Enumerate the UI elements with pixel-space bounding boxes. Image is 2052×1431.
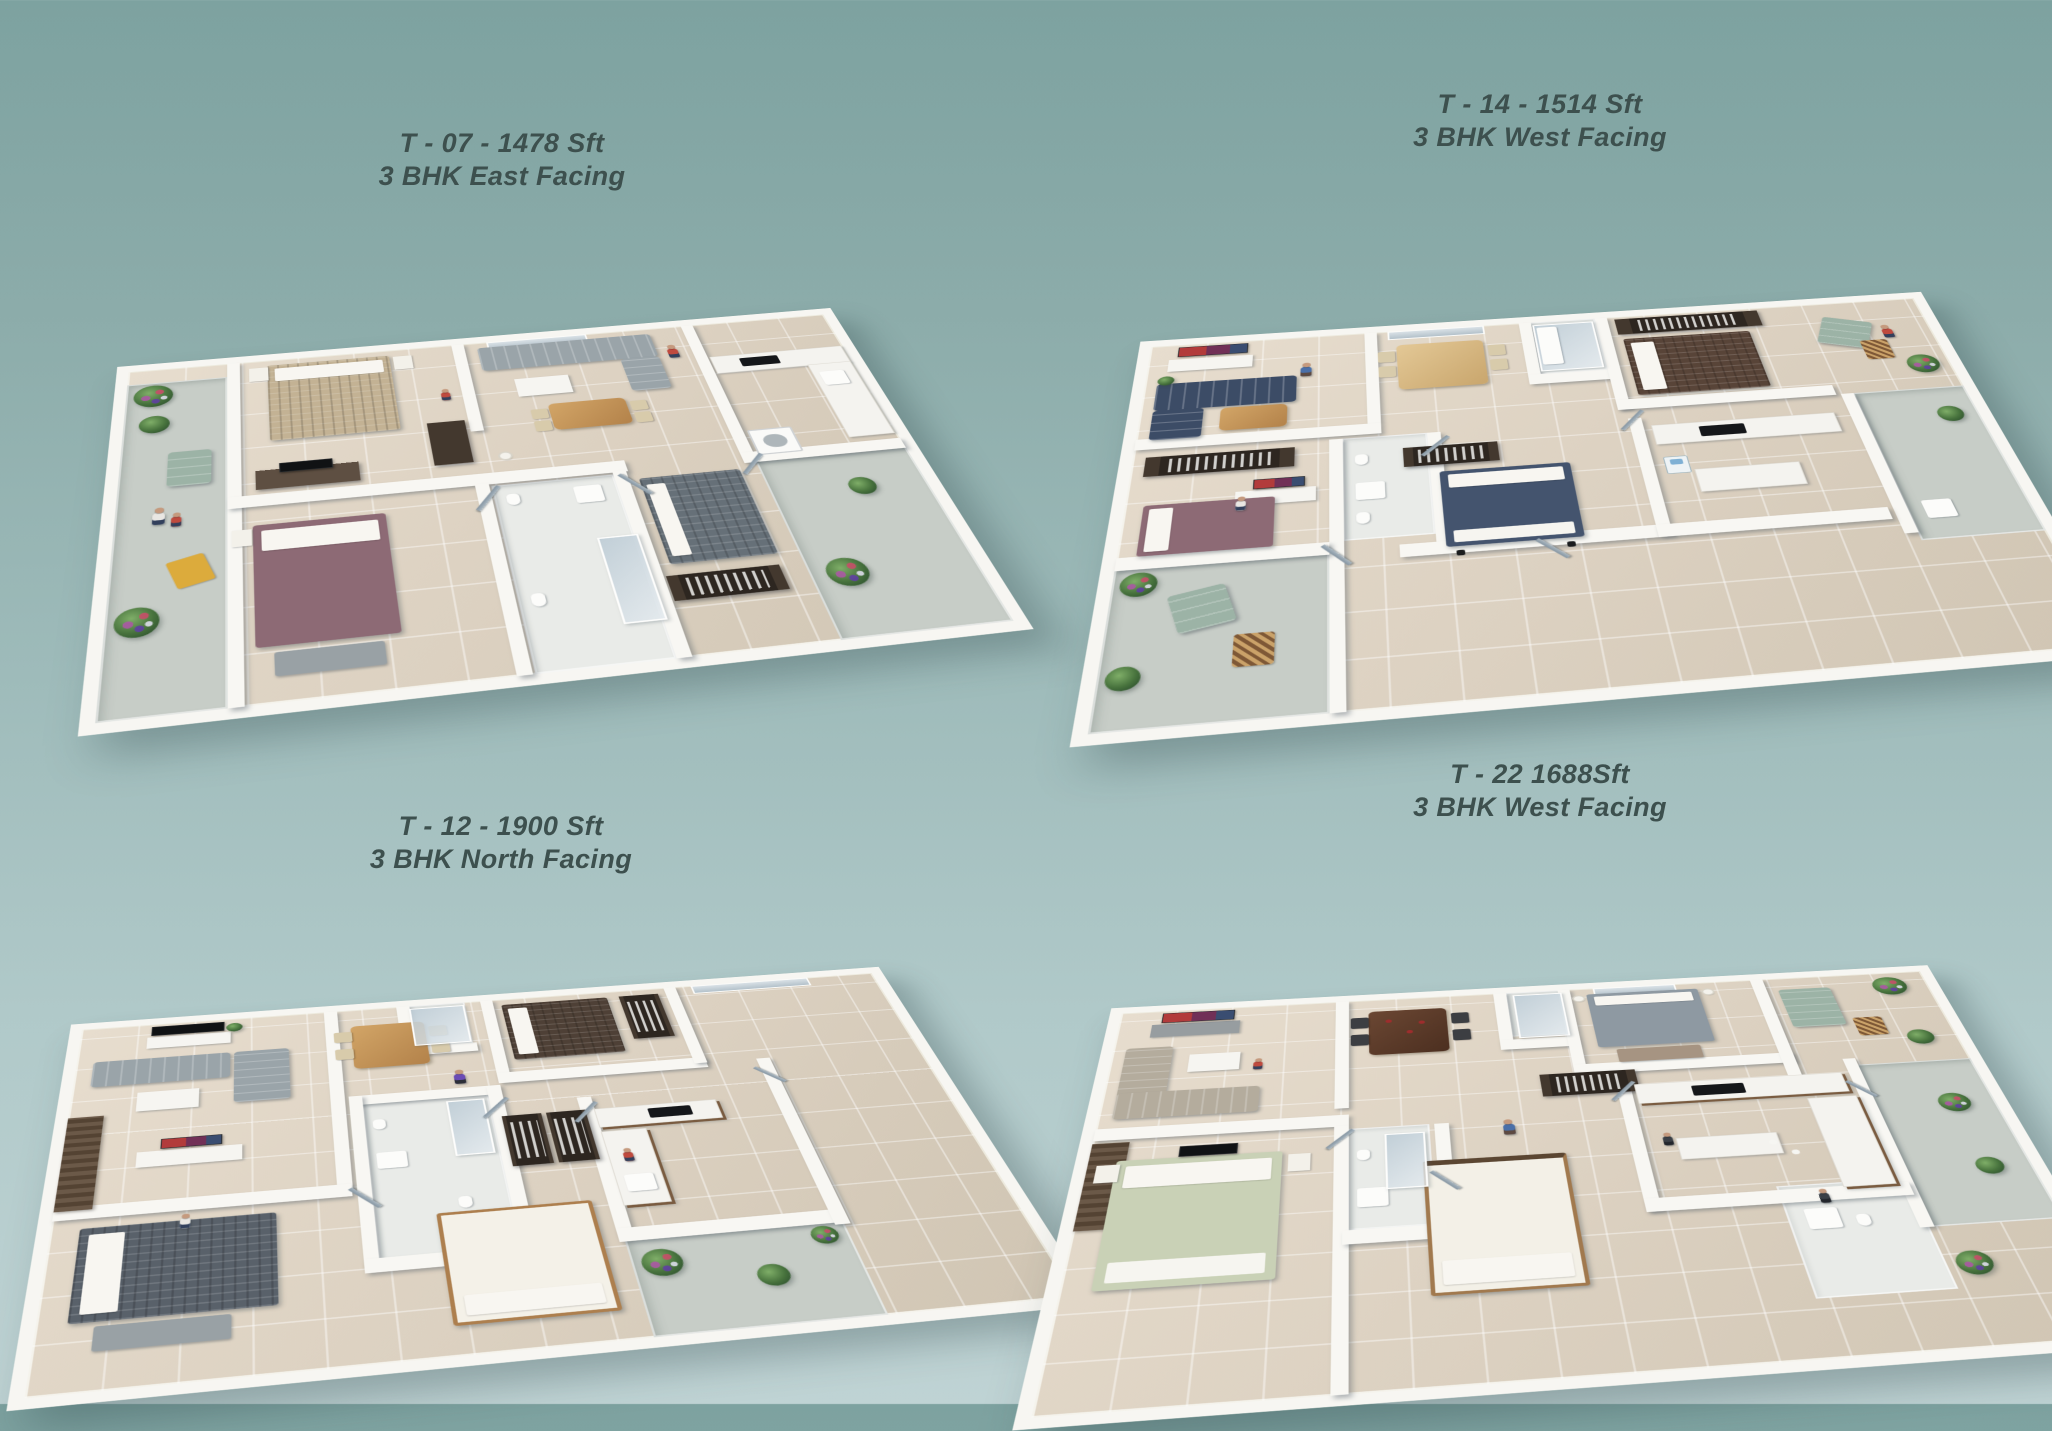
- bed: [1586, 989, 1715, 1048]
- dining-table: [1396, 340, 1488, 390]
- throw-blanket: [1859, 339, 1895, 359]
- wardrobe: [666, 564, 790, 601]
- dining-chair: [629, 400, 649, 411]
- person: [1661, 1133, 1674, 1146]
- coffee-table: [514, 375, 573, 397]
- wall: [1093, 1115, 1349, 1142]
- person: [1879, 324, 1896, 337]
- person: [1502, 1119, 1516, 1135]
- bed-pillows: [275, 360, 384, 382]
- kitchen-island: [1694, 461, 1807, 492]
- dining-chair: [1350, 1018, 1368, 1030]
- balcony: [755, 447, 1013, 640]
- wardrobe: [427, 420, 474, 465]
- sink: [573, 484, 606, 503]
- kitchen-island: [1675, 1132, 1784, 1160]
- tv-console: [135, 1144, 243, 1168]
- side-table: [1187, 1052, 1241, 1072]
- dishes: [1791, 1149, 1801, 1154]
- dining-chair: [1488, 344, 1507, 355]
- dining-chair: [1350, 1034, 1369, 1046]
- sink: [1357, 1187, 1388, 1208]
- wardrobe: [1143, 447, 1294, 477]
- tv-console: [1167, 355, 1253, 372]
- dining-chair: [1490, 358, 1509, 370]
- dining-chair: [634, 411, 654, 422]
- armchair: [166, 449, 211, 487]
- dining-chair: [333, 1032, 352, 1043]
- dining-chair: [530, 409, 549, 420]
- sofa-chaise: [1149, 408, 1204, 441]
- bed: [1623, 331, 1771, 395]
- shower-glass: [409, 1005, 472, 1046]
- bed: [267, 356, 401, 441]
- sink: [1356, 481, 1385, 500]
- floor-plan-t07: [78, 308, 1034, 737]
- bed: [501, 997, 626, 1059]
- dining-chair: [335, 1049, 354, 1061]
- plant: [226, 1022, 242, 1032]
- wall: [1364, 333, 1381, 424]
- floor-lamp: [499, 452, 511, 459]
- nightstand: [393, 355, 414, 369]
- bed: [253, 513, 402, 648]
- plant: [1904, 1029, 1938, 1045]
- coffee-table: [136, 1088, 199, 1111]
- bench: [274, 641, 387, 677]
- wardrobe: [619, 994, 675, 1039]
- shower-glass: [1512, 993, 1571, 1038]
- person: [440, 389, 451, 401]
- bedside-lamp: [1574, 996, 1585, 1001]
- toilet: [458, 1195, 474, 1208]
- plan-t14-label: T - 14 - 1514 Sft 3 BHK West Facing: [1413, 88, 1667, 154]
- plan-t12-subtitle: 3 BHK North Facing: [370, 843, 632, 876]
- window: [1387, 326, 1484, 341]
- plan-t14-subtitle: 3 BHK West Facing: [1413, 121, 1667, 154]
- nightstand: [1288, 1153, 1311, 1171]
- coffee-table: [1218, 404, 1287, 431]
- brochure-page: { "page": { "background_top": "#7da2a0",…: [0, 0, 2052, 1404]
- bed: [68, 1212, 279, 1324]
- plan-t22-title: T - 22 1688Sft: [1413, 758, 1667, 791]
- bed-pillows: [1122, 1158, 1272, 1189]
- plan-t12-title: T - 12 - 1900 Sft: [370, 810, 632, 843]
- bed-pillows: [464, 1283, 607, 1316]
- plate: [1385, 1019, 1391, 1023]
- dining-chair: [1377, 351, 1395, 363]
- bed-pillows: [79, 1232, 125, 1315]
- sofa-chaise: [234, 1048, 291, 1103]
- bed: [437, 1200, 624, 1326]
- dining-chair: [1378, 366, 1396, 378]
- dining-chair: [1451, 1012, 1470, 1023]
- dining-table: [547, 397, 633, 429]
- plan-t12-label: T - 12 - 1900 Sft 3 BHK North Facing: [370, 810, 632, 876]
- throw-blanket: [1852, 1016, 1889, 1035]
- bed-pillows: [1442, 1252, 1575, 1285]
- person: [180, 1213, 191, 1228]
- sofa: [1778, 987, 1847, 1027]
- nightstand: [1093, 1165, 1120, 1183]
- wall: [1330, 1125, 1348, 1395]
- wall: [52, 1183, 353, 1221]
- plant: [1951, 1249, 1999, 1275]
- person: [665, 344, 681, 357]
- bed-pillows: [1448, 466, 1566, 487]
- person: [152, 507, 166, 525]
- person: [170, 512, 181, 527]
- bed-pillows: [1143, 508, 1173, 552]
- nightstand: [232, 529, 253, 547]
- bed: [639, 469, 778, 564]
- bed-footboard: [1103, 1252, 1265, 1284]
- sofa-chaise: [620, 356, 672, 391]
- bedside-lamp: [1702, 989, 1713, 994]
- window: [690, 978, 812, 994]
- dining-chair: [534, 420, 553, 431]
- nightstand: [249, 367, 268, 382]
- bed: [1423, 1153, 1591, 1297]
- plan-t07-label: T - 07 - 1478 Sft 3 BHK East Facing: [379, 127, 626, 193]
- plan-t22-label: T - 22 1688Sft 3 BHK West Facing: [1413, 758, 1667, 824]
- bed-pillows: [1593, 991, 1694, 1005]
- person: [453, 1069, 467, 1084]
- wall: [1334, 1001, 1349, 1108]
- kitchen-counter: [1651, 412, 1842, 444]
- plan-t07-subtitle: 3 BHK East Facing: [379, 160, 626, 193]
- sink: [377, 1151, 408, 1169]
- person: [1253, 1058, 1263, 1070]
- bed-pillows: [1631, 341, 1668, 390]
- water-dispenser: [1663, 455, 1692, 474]
- person: [1235, 496, 1246, 511]
- plan-t22-subtitle: 3 BHK West Facing: [1413, 791, 1667, 824]
- plan-t07-title: T - 07 - 1478 Sft: [379, 127, 626, 160]
- throw-blanket: [1232, 631, 1274, 667]
- floor-plan-t14: [1070, 292, 2052, 748]
- wall: [681, 325, 757, 462]
- shower-glass: [1384, 1132, 1428, 1190]
- speaker: [1456, 550, 1465, 556]
- kitchen-sink: [623, 1172, 658, 1191]
- person: [1301, 362, 1312, 376]
- media-shelf: [54, 1116, 105, 1213]
- bed-pillows: [507, 1007, 539, 1054]
- floor-plan-t12: [6, 967, 1096, 1411]
- plan-t14-title: T - 14 - 1514 Sft: [1413, 88, 1667, 121]
- plant: [1868, 976, 1911, 995]
- sofa: [1116, 1046, 1174, 1097]
- speaker: [1567, 541, 1576, 547]
- wall: [1656, 507, 1893, 537]
- sofa: [90, 1052, 230, 1087]
- bed: [1091, 1151, 1282, 1292]
- bed: [1439, 462, 1584, 547]
- wall: [496, 1057, 708, 1083]
- dining-chair: [1452, 1029, 1472, 1041]
- bed-pillows: [261, 519, 381, 551]
- wall: [756, 1058, 850, 1225]
- floor-plan-t22: [1012, 965, 2052, 1430]
- plant: [1903, 353, 1944, 373]
- bed-pillows: [646, 483, 692, 557]
